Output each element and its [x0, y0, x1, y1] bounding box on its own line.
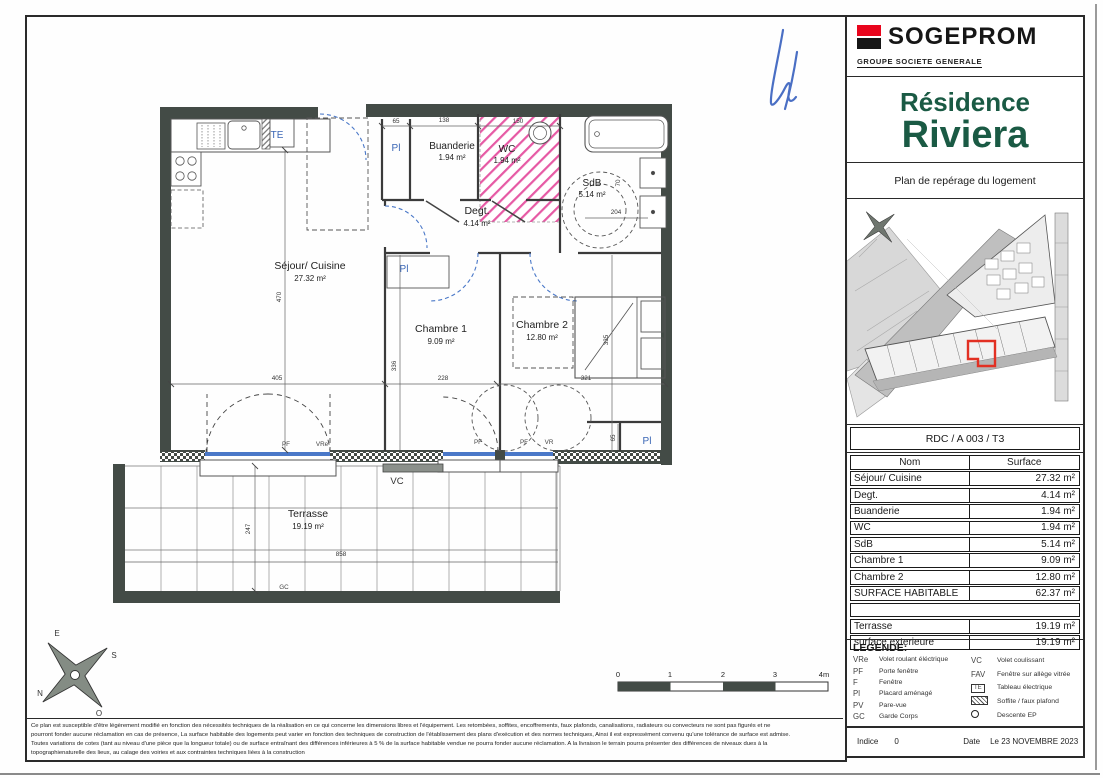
tag-pl-chambre1: Pl [400, 264, 409, 275]
compass-o: O [96, 709, 102, 718]
room-label-chambre2: Chambre 2 [516, 319, 568, 331]
tag-pl-chambre2: Pl [643, 436, 652, 447]
scale-2: 2 [721, 670, 725, 679]
plan-caption: Plan de repérage du logement [847, 163, 1083, 199]
disclaimer-line: pourront fonder aucune réclamation en ca… [31, 731, 837, 740]
room-label-chambre1: Chambre 1 [415, 323, 467, 335]
compass-rose: E S N O [16, 616, 134, 734]
site-plan [847, 199, 1083, 423]
unit-id: RDC / A 003 / T3 [850, 427, 1080, 450]
indice-label: Indice [857, 737, 878, 746]
room-area-chambre1: 9.09 m² [427, 337, 454, 346]
legend-item: FAVFenêtre sur allège vitrée [971, 668, 1077, 682]
table-row: Degt.4.14 m² [850, 488, 1080, 503]
pen-mark [771, 30, 797, 109]
dim-470: 470 [276, 291, 283, 302]
legend: LEGENDE: VReVolet roulant éléctrique PFP… [847, 639, 1083, 727]
descente-ep-icon [971, 710, 979, 718]
tag-pf-sejour: PF [282, 441, 290, 448]
volet-coulissant-bar [383, 464, 443, 472]
dim-70: 70 [615, 179, 622, 187]
legend-item: Soffite / faux plafond [971, 695, 1077, 709]
te-box-icon: TE [971, 684, 985, 693]
disclaimer: Ce plan est susceptible d'être légèremen… [25, 718, 843, 758]
room-area-sdb: 5.14 m² [578, 190, 605, 199]
table-row: Chambre 19.09 m² [850, 553, 1080, 568]
tag-vc: VC [390, 476, 403, 487]
compass-n: N [37, 689, 43, 698]
date-value: Le 23 NOVEMBRE 2023 [990, 737, 1078, 746]
scale-3: 3 [773, 670, 777, 679]
revision-footer: Indice 0 Date Le 23 NOVEMBRE 2023 [847, 727, 1083, 754]
residence-line1: Résidence [847, 89, 1083, 115]
dim-858: 858 [336, 551, 347, 558]
room-area-sejour: 27.32 m² [294, 274, 326, 283]
tag-pf-chambre2: PF [520, 439, 528, 446]
brand-name: SOGEPROM [888, 23, 1037, 51]
col-header-surface: Surface [970, 457, 1079, 468]
dim-335: 335 [603, 334, 610, 345]
room-area-wc: 1.94 m² [493, 156, 520, 165]
legend-item: VReVolet roulant éléctrique [853, 654, 971, 665]
dim-247: 247 [245, 523, 252, 534]
terrace-grid [125, 466, 560, 591]
room-label-degt: Degt. [464, 205, 489, 217]
unit-id-section: RDC / A 003 / T3 [847, 425, 1083, 453]
dim-405: 405 [272, 375, 283, 382]
disclaimer-line: Ce plan est susceptible d'être légèremen… [31, 722, 837, 731]
legend-item: FFenêtre [853, 677, 971, 688]
room-label-wc: WC [499, 144, 516, 155]
societe-generale-logo-icon [857, 25, 881, 49]
room-area-buanderie: 1.94 m² [438, 153, 465, 162]
room-area-terrasse: 19.19 m² [292, 522, 324, 531]
room-label-buanderie: Buanderie [429, 141, 475, 152]
table-row: Chambre 212.80 m² [850, 570, 1080, 585]
brand-section: SOGEPROM GROUPE SOCIETE GENERALE [847, 17, 1083, 77]
brand-subtitle: GROUPE SOCIETE GENERALE [857, 57, 982, 68]
residence-line2: Riviera [847, 116, 1083, 154]
table-row-surface-habitable: SURFACE HABITABLE62.37 m² [850, 586, 1080, 601]
legend-item: Descente EP [971, 708, 1077, 722]
surface-table: Nom Surface Séjour/ Cuisine27.32 m² Degt… [847, 453, 1083, 639]
fixtures [171, 116, 668, 228]
scale-1: 1 [668, 670, 672, 679]
tag-vre-sejour: VRe [316, 441, 329, 448]
legend-item: PlPlacard aménagé [853, 688, 971, 699]
soffite-hatch-icon [971, 696, 988, 705]
dim-336: 336 [391, 360, 398, 371]
dim-65-placard: 65 [610, 434, 617, 442]
bed [575, 297, 665, 378]
dim-138: 138 [439, 117, 450, 124]
room-label-terrasse: Terrasse [288, 508, 328, 520]
legend-item: VCVolet coulissant [971, 654, 1077, 668]
legend-item: PVPare-vue [853, 700, 971, 711]
room-label-sdb: SdB [583, 178, 602, 189]
legend-item: TETableau électrique [971, 681, 1077, 695]
title-block: SOGEPROM GROUPE SOCIETE GENERALE Résiden… [845, 15, 1085, 758]
scan-edge [1095, 4, 1097, 770]
table-row-empty [850, 603, 1080, 618]
scale-bar: 0 1 2 3 4m [616, 670, 829, 691]
legend-item: PFPorte fenêtre [853, 665, 971, 676]
table-row: Buanderie1.94 m² [850, 504, 1080, 519]
compass-e: E [54, 629, 59, 638]
room-label-sejour: Séjour/ Cuisine [274, 260, 345, 272]
compass-s: S [111, 651, 116, 660]
stove [171, 152, 201, 186]
tag-pl-entree: Pl [392, 143, 401, 154]
dim-321: 321 [581, 375, 592, 382]
scale-0: 0 [616, 670, 620, 679]
tag-te: TE [271, 130, 284, 141]
table-header: Nom Surface [850, 455, 1080, 470]
tag-gc: GC [279, 584, 289, 591]
table-row: WC1.94 m² [850, 521, 1080, 536]
col-header-nom: Nom [851, 456, 970, 469]
table-row: Terrasse19.19 m² [850, 619, 1080, 634]
duct-hatch [262, 119, 270, 149]
closet-chambre1 [387, 256, 449, 288]
dim-228: 228 [438, 375, 449, 382]
floor-plan: 65 138 150 470 405 336 228 321 335 204 7… [0, 0, 845, 778]
legend-item: GCGarde Corps [853, 711, 971, 722]
disclaimer-line: Toutes variations de cotes (tant au nive… [31, 740, 837, 749]
dim-150: 150 [513, 118, 524, 125]
table-row: SdB5.14 m² [850, 537, 1080, 552]
scale-4m: 4m [819, 670, 829, 679]
residence-title: Résidence Riviera [847, 77, 1083, 163]
fridge-space [171, 190, 203, 228]
room-area-chambre2: 12.80 m² [526, 333, 558, 342]
tag-vr-chambre2: VR [545, 439, 554, 446]
date-label: Date [963, 737, 980, 746]
indice-value: 0 [894, 737, 898, 746]
tag-pf-chambre1: PF [474, 439, 482, 446]
room-area-degt: 4.14 m² [463, 219, 490, 228]
disclaimer-line: topographienaturelle des lieux, au calag… [31, 749, 837, 758]
legend-title: LEGENDE: [853, 642, 1077, 654]
dim-65-top: 65 [392, 118, 400, 125]
scan-edge [0, 773, 1100, 775]
dim-204: 204 [611, 209, 622, 216]
plan-sheet: 65 138 150 470 405 336 228 321 335 204 7… [0, 0, 1103, 778]
table-row: Séjour/ Cuisine27.32 m² [850, 471, 1080, 486]
site-plan-section [847, 199, 1083, 425]
